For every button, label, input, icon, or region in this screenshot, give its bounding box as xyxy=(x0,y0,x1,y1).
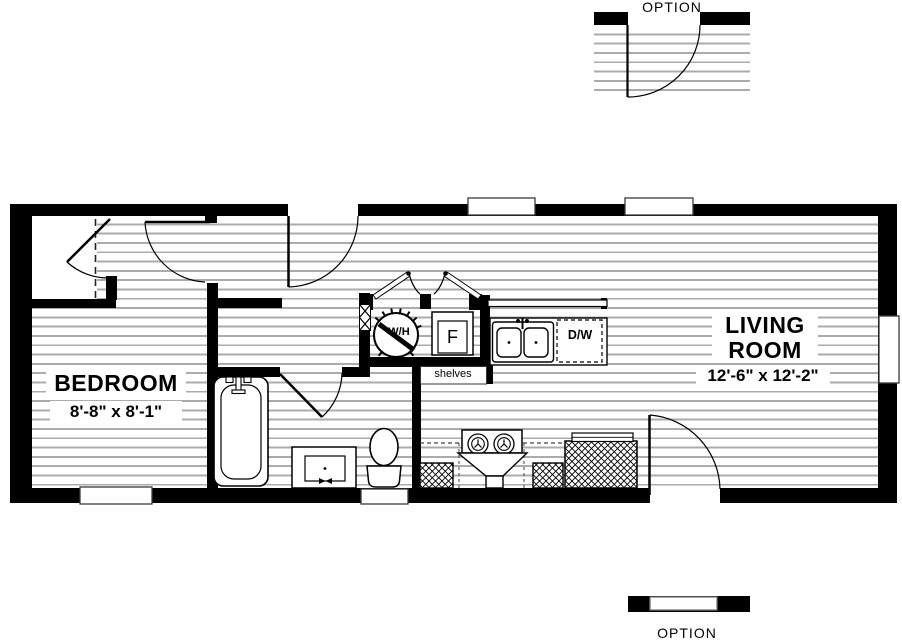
snack-bar xyxy=(488,300,607,307)
option-top-door xyxy=(628,25,701,97)
window-bath xyxy=(361,489,408,504)
bifold-doors xyxy=(373,272,481,299)
front-entry-door xyxy=(289,216,359,287)
living-room-label-line1: LIVING xyxy=(712,313,818,338)
bedroom-dimensions: 8'-8" x 8'-1" xyxy=(50,401,182,423)
dishwasher-label: D/W xyxy=(560,328,600,342)
toilet xyxy=(367,429,401,488)
bathtub xyxy=(214,377,268,486)
living-room-label-line2: ROOM xyxy=(712,338,818,363)
window-option-bottom xyxy=(650,597,717,610)
bathroom-door xyxy=(280,373,342,417)
wall-vent xyxy=(360,305,371,331)
closet-door xyxy=(67,219,110,278)
floor-plan: BEDROOM 8'-8" x 8'-1" LIVING ROOM 12'-6"… xyxy=(0,0,902,642)
base-cabinet-right xyxy=(533,463,563,488)
window-top-2 xyxy=(625,198,693,215)
furnace-label: F xyxy=(438,322,467,353)
option-top-label: OPTION xyxy=(594,0,750,15)
option-bottom-label: OPTION xyxy=(607,626,767,641)
range xyxy=(458,430,527,488)
bedroom-door xyxy=(145,222,210,282)
water-heater-label: W/H xyxy=(384,326,414,338)
base-cabinet-left xyxy=(420,463,453,488)
refrigerator xyxy=(565,433,637,488)
vanity-sink xyxy=(292,447,356,488)
bedroom-label: BEDROOM xyxy=(46,371,186,396)
shelves-label: shelves xyxy=(420,368,486,380)
window-right xyxy=(879,316,899,383)
kitchen-sink xyxy=(493,318,554,362)
window-bedroom xyxy=(80,487,152,504)
rear-door xyxy=(650,415,721,495)
window-top-1 xyxy=(468,198,535,215)
living-room-dimensions: 12'-6" x 12'-2" xyxy=(696,365,830,387)
